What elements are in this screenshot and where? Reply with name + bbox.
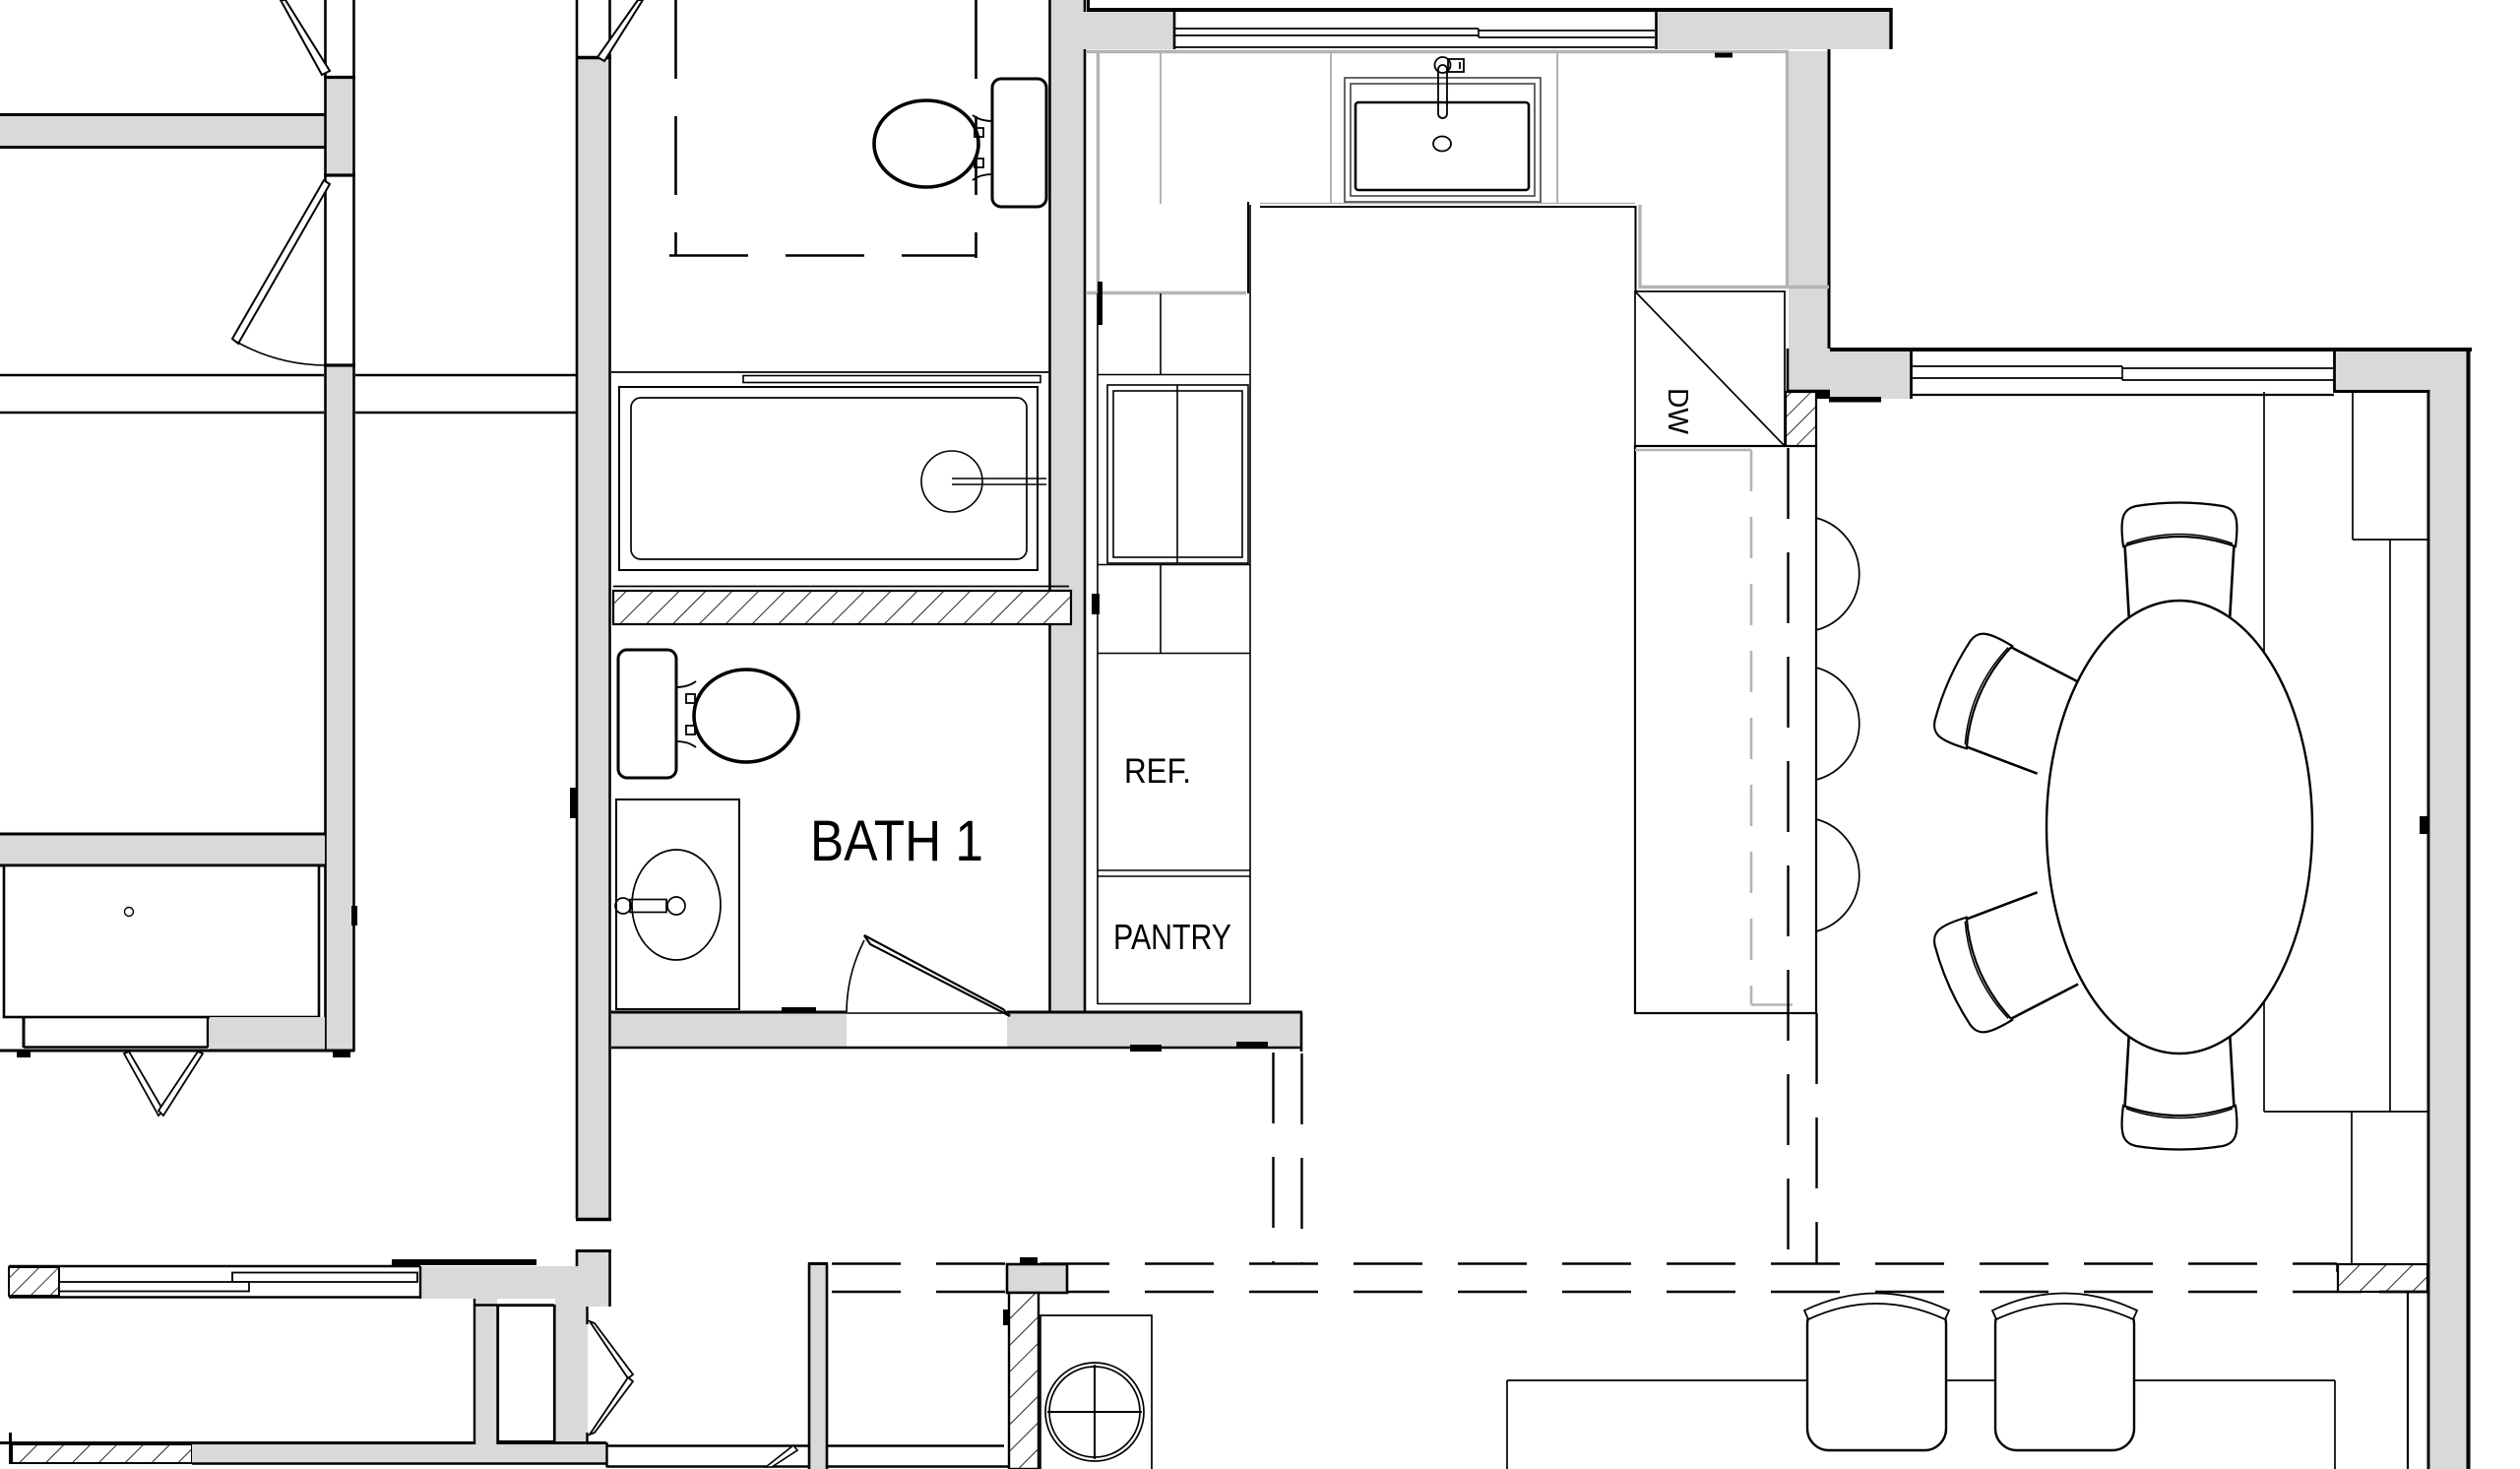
svg-text:DW: DW xyxy=(1662,388,1693,435)
svg-text:REF.: REF. xyxy=(1124,752,1191,791)
svg-text:BATH 1: BATH 1 xyxy=(810,809,983,873)
svg-text:PANTRY: PANTRY xyxy=(1113,917,1231,957)
